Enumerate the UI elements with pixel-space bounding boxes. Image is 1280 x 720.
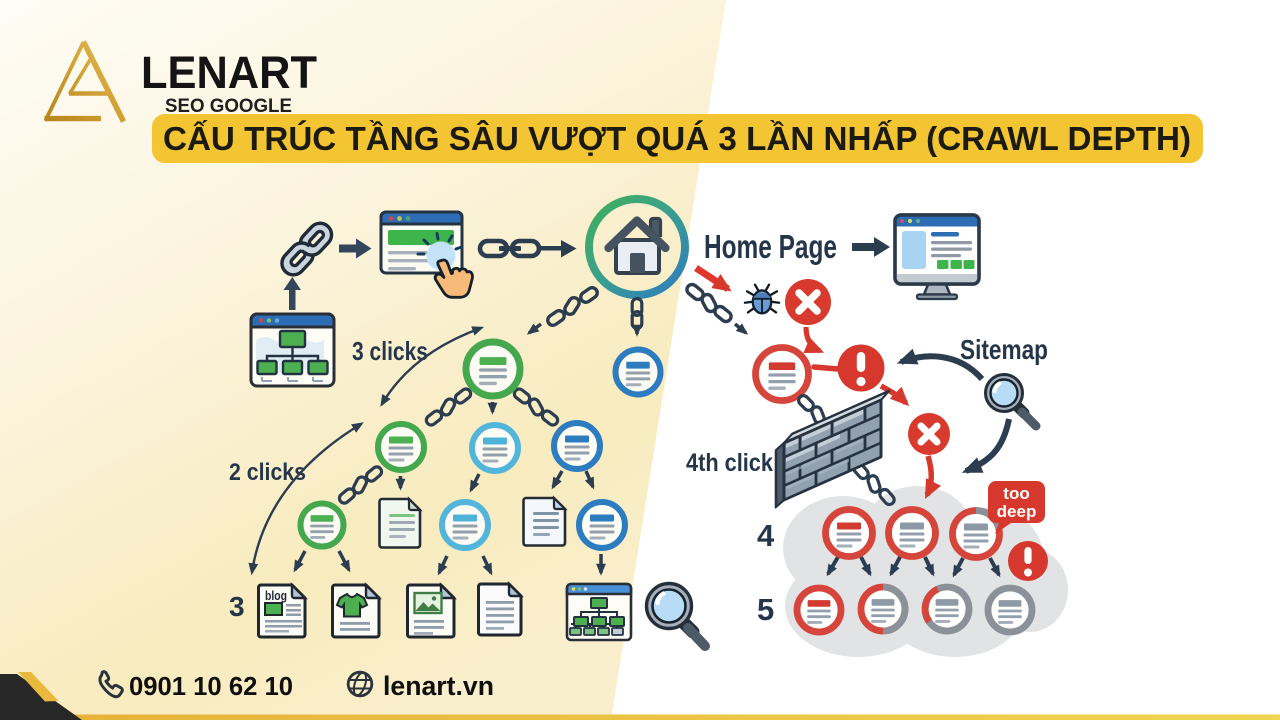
svg-text:Sitemap: Sitemap: [960, 334, 1048, 365]
svg-text:LENART: LENART: [141, 47, 317, 98]
svg-text:lenart.vn: lenart.vn: [383, 671, 494, 701]
svg-text:SEO GOOGLE: SEO GOOGLE: [165, 95, 292, 117]
svg-text:4: 4: [757, 518, 775, 553]
svg-text:blog: blog: [265, 589, 287, 603]
svg-text:too: too: [1003, 484, 1029, 503]
svg-text:0901 10 62 10: 0901 10 62 10: [129, 671, 293, 701]
svg-text:5: 5: [757, 592, 774, 627]
svg-text:CẤU TRÚC TẦNG SÂU VƯỢT QUÁ 3 L: CẤU TRÚC TẦNG SÂU VƯỢT QUÁ 3 LẦN NHẤP (C…: [163, 120, 1191, 158]
svg-text:2 clicks: 2 clicks: [229, 459, 306, 486]
svg-text:4th click: 4th click: [686, 449, 773, 477]
svg-text:Home Page: Home Page: [704, 228, 837, 265]
svg-text:3: 3: [229, 591, 245, 622]
svg-text:3 clicks: 3 clicks: [352, 336, 428, 366]
svg-text:deep: deep: [997, 502, 1037, 521]
